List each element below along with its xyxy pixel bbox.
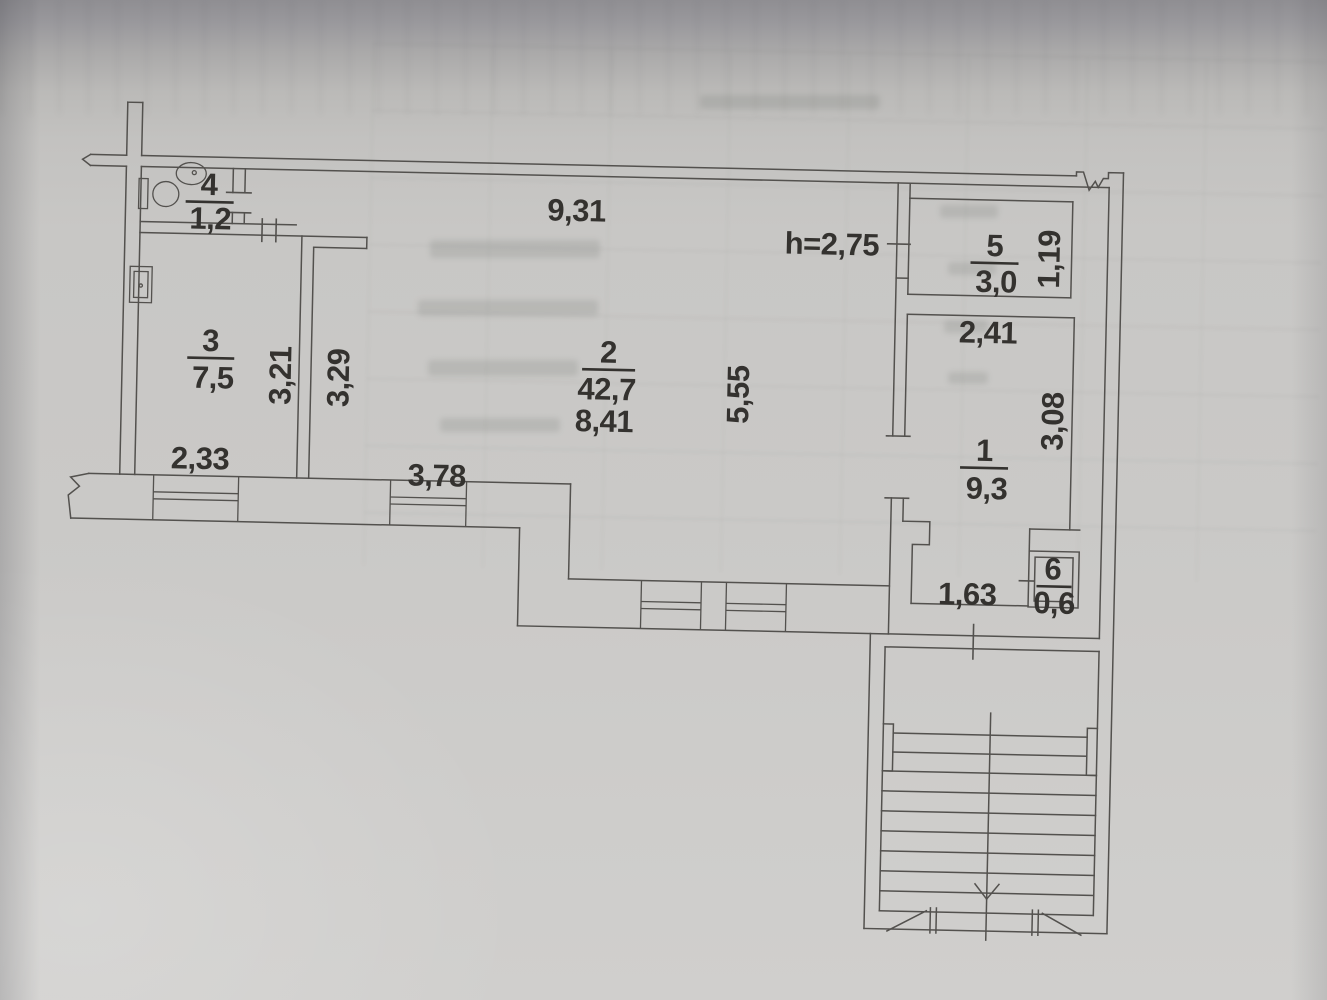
staircase	[864, 634, 1114, 943]
electrical-panel-icon	[129, 266, 152, 302]
dim-room1-height-label: 3,08	[1034, 392, 1070, 451]
room-2-number: 2	[600, 335, 618, 370]
room-3-number: 3	[202, 323, 220, 358]
room-1-number: 1	[976, 433, 994, 468]
dim-hall-bottom-width-label: 3,78	[407, 457, 466, 493]
room-3-area: 7,5	[192, 360, 235, 396]
toilet-icon	[139, 178, 180, 209]
stair-arrow	[987, 884, 999, 899]
room-6-number: 6	[1044, 551, 1062, 586]
dim-hall-left-height-label: 3,29	[320, 348, 356, 407]
room-2-fraction-bar	[582, 369, 635, 370]
room-2-width-label: 8,41	[574, 403, 633, 439]
dim-room1-width-label: 2,41	[958, 314, 1017, 350]
room-1-fraction-bar	[960, 467, 1008, 468]
dim-room3-height-label: 3,21	[262, 346, 298, 405]
windows	[151, 475, 789, 632]
room-3-fraction-bar	[187, 358, 234, 359]
room-1-area: 9,3	[965, 471, 1008, 507]
dim-room3-width-label: 2,33	[171, 440, 230, 476]
room-2-area: 42,7	[577, 371, 636, 407]
room-5-area: 3,0	[975, 264, 1017, 300]
stair-arrow	[975, 884, 987, 899]
dim-entry-width-label: 1,63	[938, 576, 997, 612]
ceiling-height-label: h=2,75	[784, 226, 879, 263]
floor-plan-drawing: 9,31 h=2,75 4 1,2 3 7,5 2,33 3,21 3,29 2…	[0, 0, 1327, 1000]
dim-room5-height-label: 1,19	[1031, 230, 1067, 289]
room-5-number: 5	[986, 228, 1004, 263]
floor-plan: 9,31 h=2,75 4 1,2 3 7,5 2,33 3,21 3,29 2…	[0, 0, 1327, 1000]
stair-direction-line	[986, 713, 991, 940]
dim-hall-right-height-label: 5,55	[720, 365, 756, 424]
room-4-number: 4	[200, 167, 219, 202]
scanned-paper: 9,31 h=2,75 4 1,2 3 7,5 2,33 3,21 3,29 2…	[0, 0, 1327, 1000]
room-6-area: 0,6	[1033, 585, 1076, 621]
dim-top-width-label: 9,31	[547, 192, 606, 228]
room-4-area: 1,2	[189, 201, 231, 237]
